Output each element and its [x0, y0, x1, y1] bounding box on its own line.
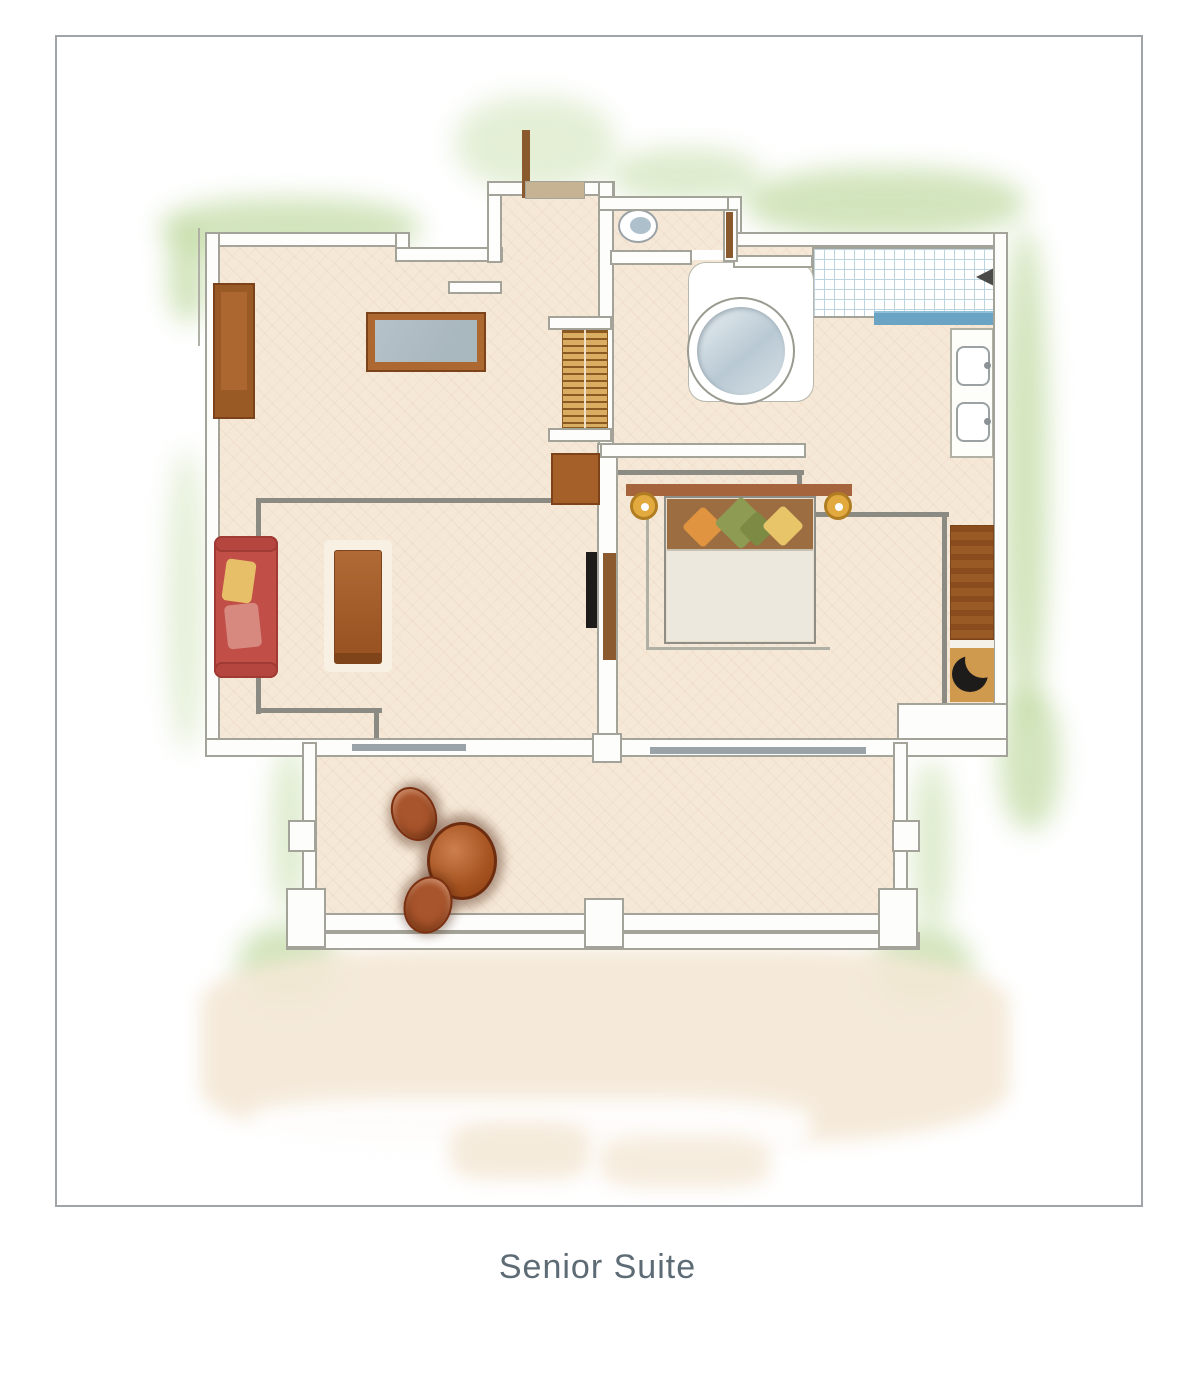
- railing-post: [892, 820, 920, 852]
- closet-niche-wall-line: [942, 512, 947, 706]
- green-foliage-glow: [745, 168, 1025, 238]
- bath-alcove-wall: [733, 255, 813, 268]
- railing-post: [878, 888, 918, 948]
- wall-junction-post: [592, 733, 622, 763]
- closet-nook-wall: [548, 316, 612, 330]
- duvet: [667, 549, 813, 641]
- hall-cabinet: [551, 453, 600, 505]
- faucet-icon: [984, 418, 991, 425]
- niche-shelf-line: [950, 640, 994, 648]
- green-foliage-glow: [610, 148, 760, 203]
- coffee-table-edge: [335, 653, 381, 663]
- bedroom-bath-wall: [600, 443, 806, 458]
- entry-door-sill: [525, 181, 585, 199]
- nightstand-lamp: [630, 492, 658, 520]
- shower-tray: [812, 247, 999, 318]
- exterior-wall: [205, 232, 409, 247]
- jacuzzi-tub: [687, 297, 795, 405]
- headboard: [626, 484, 852, 496]
- toilet-bowl: [630, 217, 651, 234]
- toilet-door-leaf: [726, 212, 733, 258]
- green-foliage-glow: [455, 96, 615, 191]
- faucet-icon: [984, 362, 991, 369]
- exterior-wall: [727, 232, 1008, 247]
- closet-rail-bar: [584, 330, 586, 428]
- lamp-center: [835, 503, 843, 511]
- sofa-armrest: [214, 536, 278, 552]
- closet-nook-wall: [548, 428, 612, 442]
- luggage-niche: [950, 648, 994, 702]
- toilet-nook-wall: [610, 250, 692, 265]
- green-foliage-glow: [168, 450, 204, 750]
- wall-stub: [448, 281, 502, 294]
- railing-post: [584, 898, 624, 948]
- plan-caption: Senior Suite: [55, 1244, 1140, 1290]
- watercolor-wash-blob: [600, 1136, 770, 1188]
- lamp-center: [641, 503, 649, 511]
- nightstand-lamp: [824, 492, 852, 520]
- railing-post: [288, 820, 316, 852]
- shower-glass-screen: [874, 311, 999, 325]
- railing-post: [286, 888, 326, 948]
- shower-head-icon: [976, 268, 994, 286]
- console-table: [366, 312, 486, 372]
- watercolor-wash-blob: [450, 1122, 590, 1180]
- floor-plan-page: Senior Suite: [0, 0, 1200, 1375]
- sideboard-panel: [221, 292, 247, 390]
- bedroom-wall-line: [797, 512, 949, 517]
- sliding-door-track: [650, 747, 866, 754]
- wardrobe: [950, 525, 994, 640]
- toilet: [618, 209, 658, 243]
- sideboard: [213, 283, 255, 419]
- sofa-pillow: [221, 558, 257, 604]
- green-foliage-glow: [168, 228, 208, 323]
- wall-shadow-line: [198, 228, 200, 346]
- green-foliage-glow: [1000, 690, 1060, 830]
- exterior-wall: [993, 232, 1008, 757]
- wall-tv-panel: [586, 552, 597, 628]
- living-room-wall-line: [256, 708, 382, 713]
- bedroom-door-leaf: [603, 553, 616, 660]
- coffee-table: [334, 550, 382, 664]
- jacuzzi-tub-water: [697, 307, 785, 395]
- sliding-door-track: [352, 744, 466, 751]
- console-table-top: [375, 320, 477, 362]
- sofa: [214, 536, 278, 678]
- bedroom-wall-line: [612, 470, 804, 475]
- green-foliage-glow: [1002, 230, 1048, 720]
- bed-platform-outline: [646, 647, 830, 650]
- sofa-armrest: [214, 662, 278, 678]
- exterior-wall: [598, 196, 742, 211]
- sofa-pillow: [224, 602, 262, 649]
